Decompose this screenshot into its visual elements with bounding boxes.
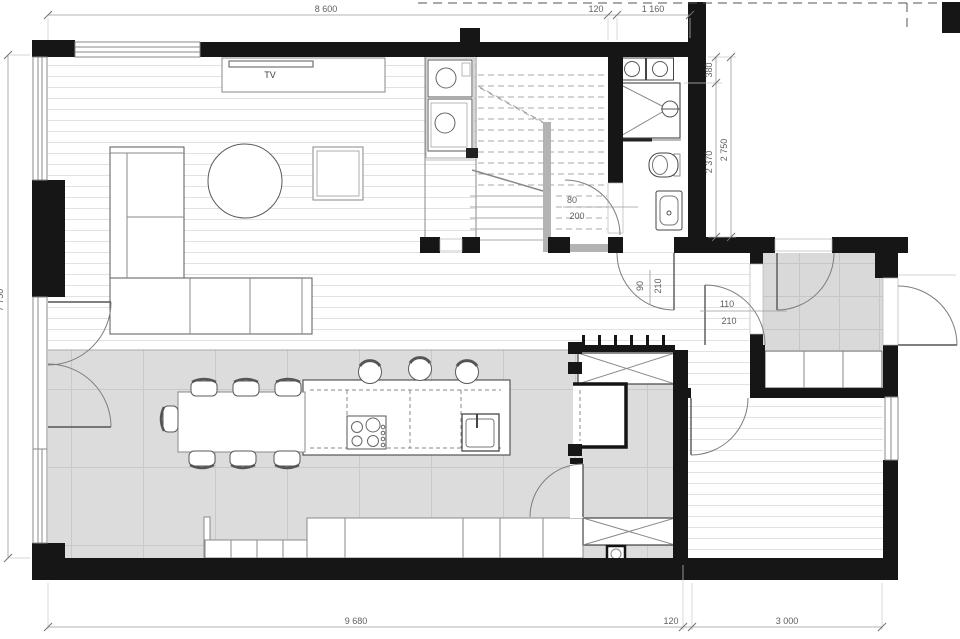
floor-plan-drawing: TV — [0, 0, 960, 639]
window-left-upper — [33, 57, 47, 180]
dim-bottom-wall: 120 — [663, 616, 678, 626]
dryer — [647, 58, 674, 80]
coat-rack-rail — [578, 345, 675, 352]
coffee-table — [208, 144, 282, 218]
tv-label: TV — [264, 70, 276, 80]
window-office-right — [885, 397, 898, 460]
bar-stool — [456, 361, 479, 384]
stair-door-width: 80 — [567, 195, 577, 205]
dining-chair — [233, 379, 259, 396]
duct-block — [466, 148, 478, 158]
dining-chair — [230, 451, 256, 468]
vestibule-door-width: 110 — [720, 299, 734, 309]
vestibule-door-height: 210 — [721, 316, 736, 326]
dim-top-wall: 120 — [588, 4, 603, 14]
dining-chair — [189, 451, 215, 468]
wardrobe — [578, 353, 675, 384]
dining-chair — [274, 451, 300, 468]
dim-right-total: 2 750 — [719, 139, 729, 162]
side-table — [313, 147, 363, 200]
dining-chair — [191, 379, 217, 396]
bar-stool — [409, 358, 432, 381]
hall-door-height: 210 — [653, 278, 663, 293]
storage-box — [583, 518, 675, 545]
dim-bottom-entry: 3 000 — [776, 616, 799, 626]
appliance-top — [428, 60, 472, 97]
dim-top-entry: 1 160 — [642, 4, 665, 14]
dim-bottom-main: 9 680 — [345, 616, 368, 626]
dim-right-a: 380 — [704, 62, 714, 77]
dining-table — [178, 392, 305, 452]
shower — [618, 83, 680, 138]
bar-stool — [359, 361, 382, 384]
dining-chair — [161, 406, 178, 432]
stair-stringer-vertical — [543, 122, 551, 250]
appliance-bottom — [428, 99, 472, 151]
exterior-area — [690, 0, 960, 237]
dining-chair — [275, 379, 301, 396]
window-top — [75, 42, 200, 57]
vestibule-bench — [765, 351, 882, 388]
kitchen-island — [303, 380, 510, 455]
dim-right-b: 2 370 — [704, 151, 714, 174]
toilet — [649, 153, 680, 177]
island-sink — [462, 414, 499, 451]
dim-left-total: 7 750 — [0, 289, 5, 312]
refrigerator-box — [573, 384, 626, 447]
floor-plan-page: TV — [0, 0, 960, 639]
vestibule-tile-floor — [763, 253, 883, 350]
stair-door-height: 200 — [569, 211, 584, 221]
washbasin — [656, 191, 682, 230]
hall-door-width: 90 — [635, 281, 645, 291]
cooktop — [347, 416, 386, 449]
office-wood-floor — [688, 398, 883, 560]
hall-wood-patch — [688, 350, 750, 390]
tv-cabinet: TV — [222, 58, 385, 92]
window-left-lower — [33, 449, 47, 543]
dim-top-main: 8 600 — [315, 4, 338, 14]
